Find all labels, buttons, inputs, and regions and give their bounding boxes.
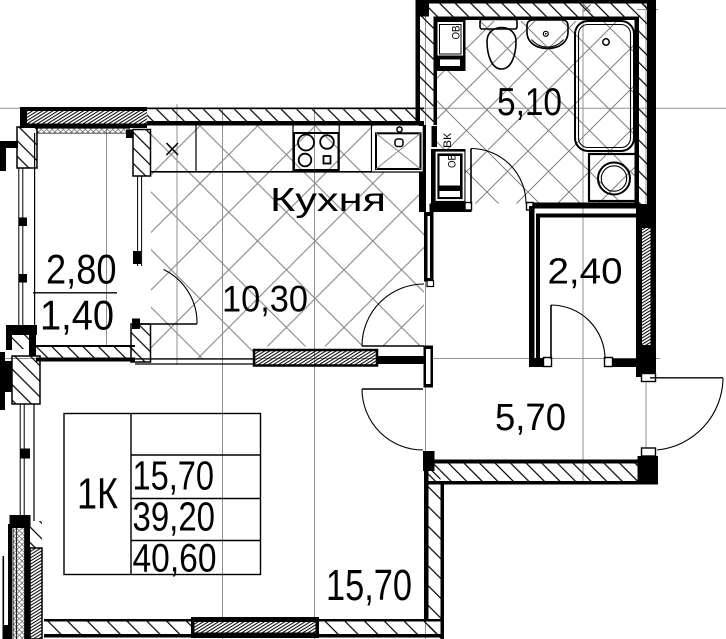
svg-text:1,40: 1,40	[40, 292, 114, 339]
svg-text:5,10: 5,10	[497, 81, 562, 124]
svg-text:2,80: 2,80	[46, 246, 117, 293]
svg-text:40,60: 40,60	[133, 537, 217, 581]
svg-text:15,70: 15,70	[326, 561, 412, 610]
svg-text:39,20: 39,20	[133, 494, 216, 540]
svg-text:10,30: 10,30	[222, 278, 308, 320]
svg-text:2,40: 2,40	[548, 251, 623, 292]
svg-text:Кухня: Кухня	[270, 181, 386, 218]
svg-text:ВК: ВК	[442, 132, 454, 148]
svg-text:ОВ: ОВ	[451, 26, 463, 40]
svg-text:ОВ: ОВ	[447, 154, 459, 168]
svg-text:15,70: 15,70	[133, 453, 215, 499]
svg-text:5,70: 5,70	[495, 397, 566, 439]
svg-text:1К: 1К	[77, 471, 119, 519]
